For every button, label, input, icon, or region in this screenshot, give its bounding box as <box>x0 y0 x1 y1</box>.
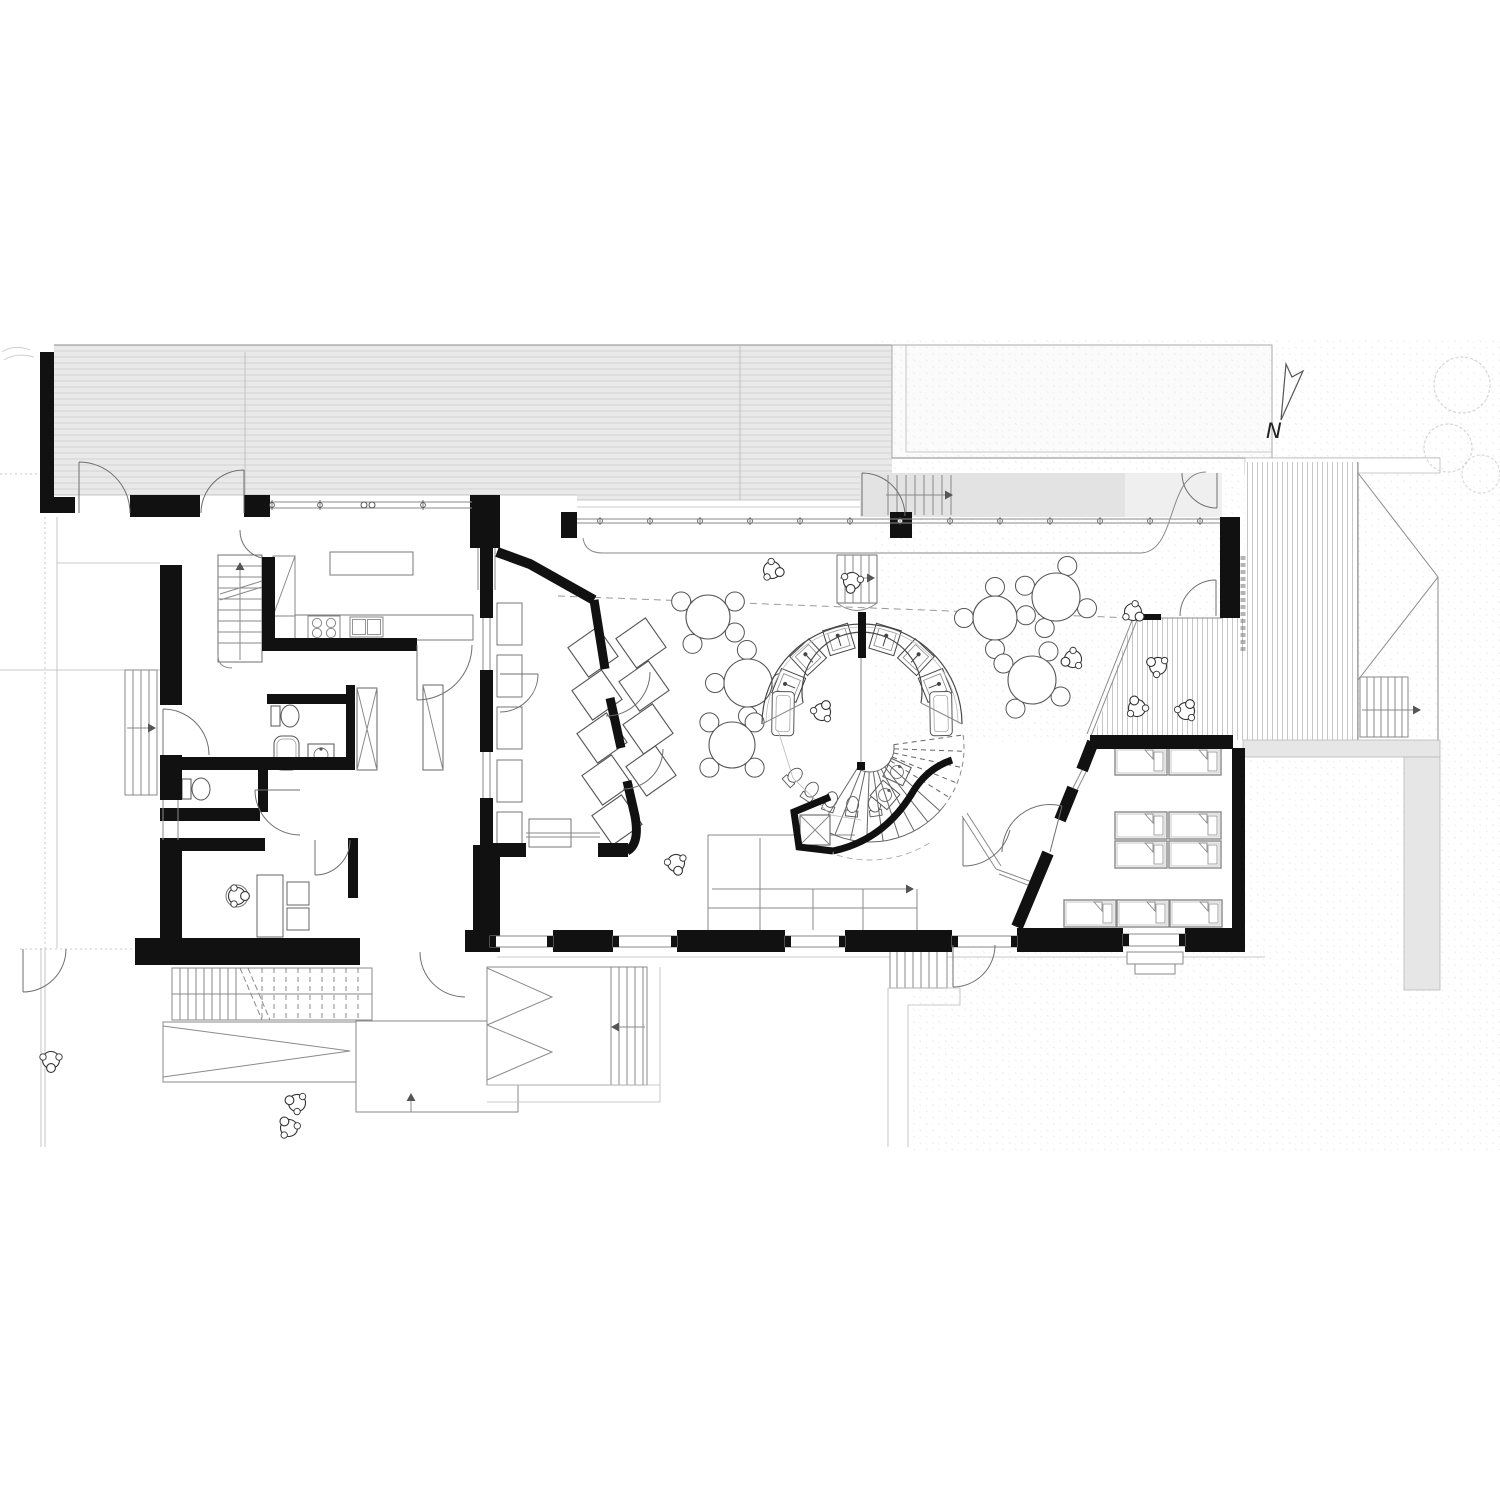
tall-cabinet <box>273 556 295 616</box>
child-table <box>568 627 618 677</box>
child-table <box>582 755 632 805</box>
chair <box>986 578 1005 597</box>
cot <box>1169 841 1221 868</box>
mullion-tick-double <box>361 502 367 508</box>
changing-unit <box>790 639 827 676</box>
chair <box>1015 576 1034 595</box>
child-table <box>616 618 666 668</box>
toilet-wc <box>182 778 210 800</box>
office-desk <box>226 875 309 937</box>
ring-service-shaft <box>800 815 830 845</box>
cot <box>1169 812 1221 839</box>
floor-plan-page: N <box>0 0 1500 1500</box>
bench <box>497 655 522 697</box>
child-table <box>619 661 669 711</box>
child-toilet <box>782 765 805 787</box>
deck-platform-band <box>1243 740 1440 757</box>
north-label: N <box>1266 419 1282 443</box>
cloakroom-cabinet-1 <box>357 688 377 770</box>
chair <box>706 674 725 693</box>
person-head <box>47 1064 56 1073</box>
floor-plan-drawing: N <box>0 0 1500 1500</box>
round-table <box>1032 573 1080 621</box>
chair <box>1016 606 1035 625</box>
bench <box>497 603 522 645</box>
bench <box>497 760 522 802</box>
kitchen-island <box>330 552 413 575</box>
cot <box>1115 748 1167 775</box>
stair-tread <box>894 749 964 751</box>
chair <box>1078 599 1097 618</box>
north-walkway <box>860 473 1222 517</box>
round-table <box>973 596 1017 640</box>
sleeping-room-bay-steps <box>1127 952 1183 974</box>
kitchen-counter <box>295 615 473 640</box>
round-table <box>1008 656 1056 704</box>
cot <box>1115 841 1167 868</box>
person-head <box>241 892 250 901</box>
round-table <box>686 595 730 639</box>
chair <box>1035 619 1054 638</box>
toilet-bathroom <box>271 705 299 727</box>
cot <box>1117 900 1169 927</box>
sleeping-room-vestibule <box>962 813 1033 887</box>
chair <box>955 609 974 628</box>
child-table <box>626 746 676 796</box>
south-entrance-structure <box>487 967 660 1102</box>
person-figure <box>808 696 838 725</box>
round-table <box>709 722 755 768</box>
left-wing-stair <box>218 555 262 668</box>
south-terrace-stair-ramp <box>163 968 518 1112</box>
ring-partition-wall <box>858 612 866 658</box>
west-exterior-stair <box>125 670 157 795</box>
person-figure <box>273 1111 303 1141</box>
cot <box>1064 900 1116 927</box>
person-figure <box>40 1052 62 1073</box>
person-figure <box>663 852 690 878</box>
chair <box>737 641 756 660</box>
child-table <box>623 704 673 754</box>
cot <box>1169 748 1221 775</box>
deck-platform-strip <box>1404 757 1440 990</box>
kitchen-fixtures <box>273 552 473 640</box>
chair <box>1058 556 1077 575</box>
bench <box>497 707 522 749</box>
person-figure <box>282 1088 309 1116</box>
sleeping-room-cots <box>1064 748 1222 927</box>
group-room-furniture <box>497 603 676 854</box>
mullion-tick-double <box>369 502 375 508</box>
person-figure <box>761 557 787 584</box>
person-figure <box>229 885 250 907</box>
cot <box>1170 900 1222 927</box>
cot <box>1115 812 1167 839</box>
terrace-northwest <box>54 345 892 507</box>
